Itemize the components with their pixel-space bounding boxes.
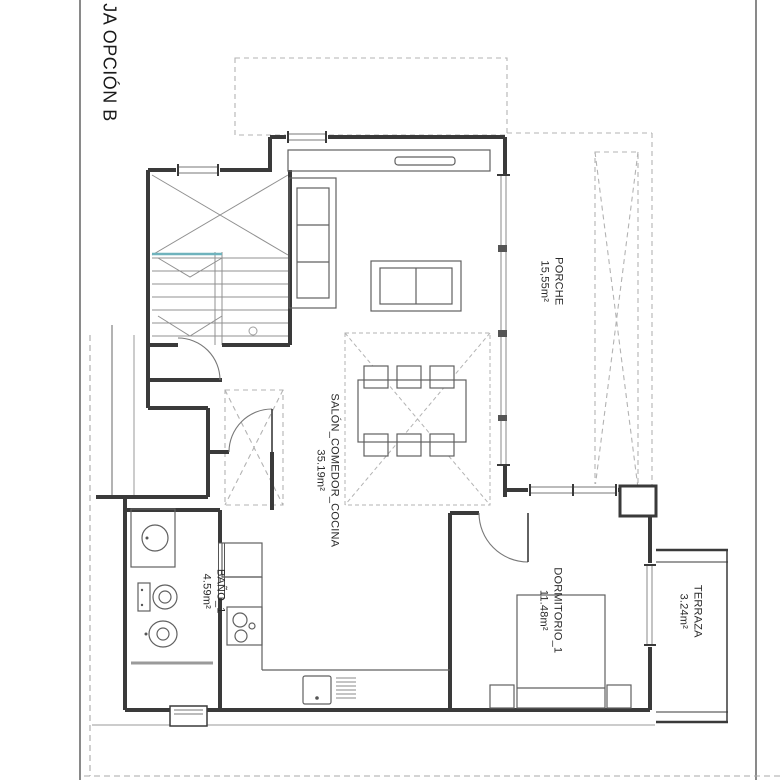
kitchen-sink [303, 676, 356, 704]
room-area: 15,55m² [537, 171, 551, 391]
dining-dashed-zone [345, 333, 490, 505]
window-top [286, 131, 328, 143]
bidet [145, 621, 178, 647]
tv-unit [288, 150, 490, 171]
dining-set [358, 366, 466, 456]
living-glass-wall [497, 175, 510, 465]
roof-overhang-dashed [235, 58, 507, 135]
floor-plan-page: JA OPCIÓN B PORCHE 15,55m² SALÓN_COMEDOR… [0, 0, 780, 780]
sofa [289, 178, 336, 308]
room-name: SALÓN_COMEDOR_COCINA [327, 360, 341, 580]
window-bedroom-top [528, 484, 618, 496]
toilet [138, 583, 177, 611]
page-title: JA OPCIÓN B [99, 0, 120, 173]
vanity-sink [131, 509, 175, 567]
kitchen-tall-unit [222, 543, 262, 577]
entry-canopy-dashed [225, 390, 283, 505]
room-label-salon: SALÓN_COMEDOR_COCINA 35.19m² [313, 360, 342, 580]
window-bedroom-slider [644, 563, 656, 647]
drainboard [336, 678, 356, 698]
coffee-table [371, 261, 461, 311]
room-name: BAÑO_1 [213, 481, 227, 701]
room-label-porche: PORCHE 15,55m² [537, 171, 566, 391]
room-label-bano: BAÑO_1 4.59m² [199, 481, 228, 701]
staircase [152, 175, 288, 345]
walls [96, 137, 650, 710]
room-label-dormitorio: DORMITORIO_1 11.48m² [536, 500, 565, 720]
nightstand-left [490, 685, 514, 708]
room-area: 4.59m² [199, 481, 213, 701]
porch-corner-pillar [620, 486, 656, 516]
bedroom-door-arc [479, 513, 528, 562]
doors [178, 338, 528, 598]
nightstand-right [607, 685, 631, 708]
pergola-dashed [507, 133, 652, 490]
room-label-terraza: TERRAZA 3.24m² [676, 501, 705, 721]
room-area: 35.19m² [313, 360, 327, 580]
window-stair [176, 164, 220, 176]
room-area: 11.48m² [536, 500, 550, 720]
room-name: PORCHE [551, 171, 565, 391]
entry-door-arc [229, 409, 272, 452]
closet-door-arc [178, 338, 220, 380]
dining-table [358, 380, 466, 442]
windows [170, 131, 656, 726]
room-name: DORMITORIO_1 [550, 500, 564, 720]
window-bathroom [170, 706, 207, 726]
room-name: TERRAZA [690, 501, 704, 721]
room-area: 3.24m² [676, 501, 690, 721]
